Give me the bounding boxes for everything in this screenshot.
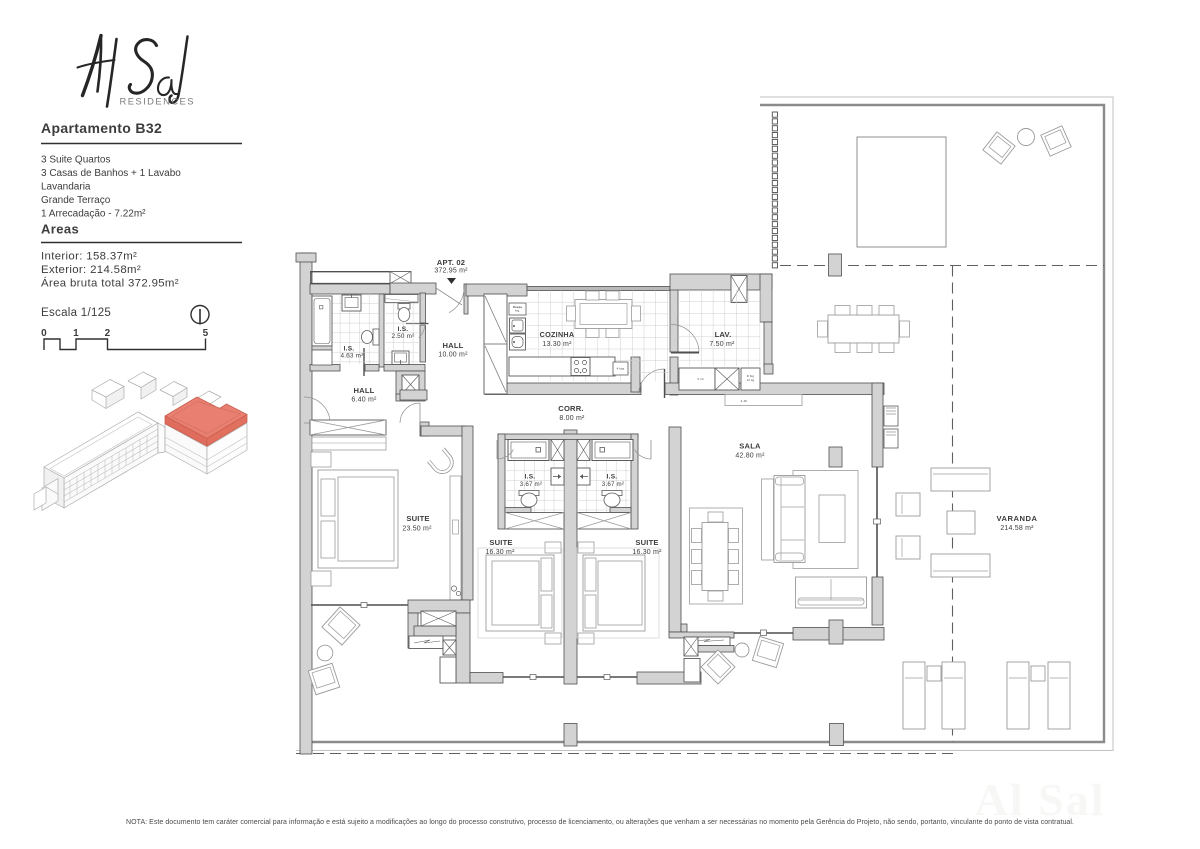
svg-text:6.40 m²: 6.40 m² — [351, 397, 377, 404]
svg-text:4 kgs: 4 kgs — [617, 367, 625, 371]
svg-text:APT. 02: APT. 02 — [437, 258, 465, 267]
svg-text:HALL: HALL — [353, 386, 374, 395]
svg-text:Grande Terraço: Grande Terraço — [41, 195, 111, 206]
svg-text:1 Arrecadação - 7.22m²: 1 Arrecadação - 7.22m² — [41, 209, 146, 220]
svg-text:3.67 m²: 3.67 m² — [602, 481, 624, 488]
svg-text:12 kg: 12 kg — [747, 378, 755, 382]
svg-text:Exterior: 214.58m²: Exterior: 214.58m² — [41, 264, 141, 276]
svg-text:Escala 1/125: Escala 1/125 — [41, 307, 111, 319]
svg-text:frig.: frig. — [515, 309, 520, 313]
svg-text:LAV.: LAV. — [715, 330, 732, 339]
svg-text:4.63 m²: 4.63 m² — [340, 353, 363, 360]
svg-text:Roupa: Roupa — [513, 305, 522, 309]
svg-text:VARANDA: VARANDA — [997, 514, 1038, 523]
svg-text:COZINHA: COZINHA — [540, 330, 575, 339]
svg-text:372.95 m²: 372.95 m² — [434, 268, 468, 275]
svg-text:I.S.: I.S. — [525, 474, 536, 481]
svg-text:4 db: 4 db — [741, 399, 748, 403]
svg-text:8.00 m²: 8.00 m² — [559, 415, 585, 422]
svg-text:7.50 m²: 7.50 m² — [709, 341, 735, 348]
svg-text:RESIDENCES: RESIDENCES — [120, 96, 195, 107]
svg-text:SUITE: SUITE — [406, 514, 429, 523]
svg-text:Apartamento B32: Apartamento B32 — [41, 120, 162, 136]
svg-text:0: 0 — [41, 328, 47, 339]
svg-text:I.S.: I.S. — [398, 326, 409, 333]
svg-text:I.S.: I.S. — [607, 474, 618, 481]
svg-text:3 Casas de Banhos + 1 Lavabo: 3 Casas de Banhos + 1 Lavabo — [41, 168, 181, 179]
svg-text:SUITE: SUITE — [635, 538, 658, 547]
svg-text:1: 1 — [73, 328, 79, 339]
svg-text:2.50 m²: 2.50 m² — [391, 333, 414, 340]
svg-text:Interior: 158.37m²: Interior: 158.37m² — [41, 251, 137, 263]
svg-text:3 Suite Quartos: 3 Suite Quartos — [41, 155, 110, 166]
svg-text:23.50 m²: 23.50 m² — [402, 526, 432, 533]
svg-text:SUITE: SUITE — [489, 538, 512, 547]
svg-text:CORR.: CORR. — [558, 404, 583, 413]
svg-text:214.58 m²: 214.58 m² — [1000, 525, 1034, 532]
svg-text:5 ml.: 5 ml. — [697, 377, 704, 381]
svg-text:Área bruta total 372.95m²: Área bruta total 372.95m² — [41, 277, 179, 290]
svg-text:Lavandaria: Lavandaria — [41, 182, 91, 193]
svg-text:I.S.: I.S. — [344, 346, 355, 353]
svg-text:3.67 m²: 3.67 m² — [520, 481, 542, 488]
svg-text:Areas: Areas — [41, 222, 79, 237]
svg-text:Al Sal: Al Sal — [975, 774, 1106, 825]
svg-text:10.00 m²: 10.00 m² — [438, 352, 468, 359]
svg-text:SALA: SALA — [739, 442, 761, 451]
svg-text:NOTA: Este documento tem carát: NOTA: Este documento tem caráter comerci… — [126, 819, 1074, 826]
svg-text:2: 2 — [105, 328, 111, 339]
svg-text:42.80 m²: 42.80 m² — [735, 453, 765, 460]
svg-text:5: 5 — [203, 328, 209, 339]
svg-text:HALL: HALL — [442, 341, 463, 350]
svg-text:13.30 m²: 13.30 m² — [542, 341, 572, 348]
